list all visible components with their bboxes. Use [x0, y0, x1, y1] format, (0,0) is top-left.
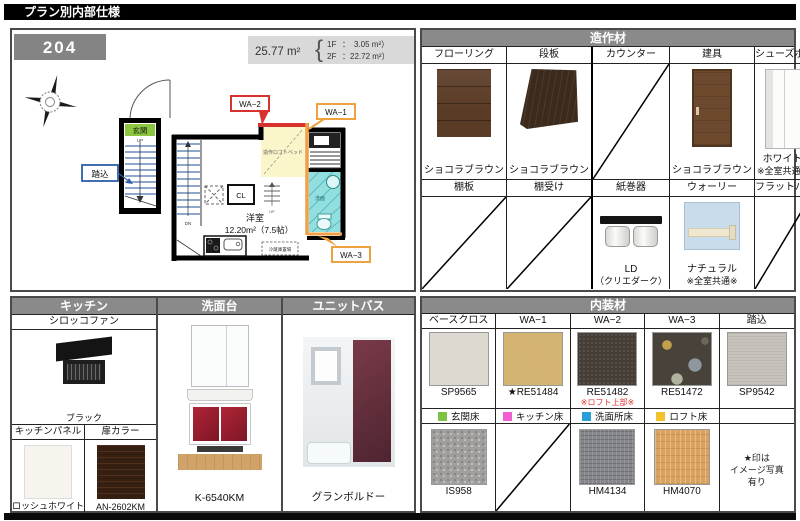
col-flatbar-label: フラットバー: [755, 180, 800, 197]
door-swatch: [692, 69, 732, 147]
rail-note: ※全室共通※: [686, 276, 737, 286]
kitchen-floor-color: [503, 412, 512, 421]
senmen-floor-color: [582, 412, 591, 421]
kitchen-door-swatch: [97, 445, 145, 499]
kitchen-panel-value: ロッシュホワイト: [12, 499, 84, 512]
shoebox-note: ※全室共通※: [757, 166, 800, 176]
area-2f-label: 2F: [327, 52, 336, 61]
wa2-swatch: [577, 332, 637, 386]
wa2-pointer: [259, 111, 269, 125]
kitchen-panel-label: キッチンパネル: [12, 425, 85, 440]
fumikomi-swatch: [727, 332, 787, 386]
col-wa1-label: WA−1: [496, 314, 570, 329]
paperholder-note: （クリエダーク）: [595, 276, 667, 286]
page-title: プラン別内部仕様: [4, 4, 796, 20]
col-counter-label: カウンター: [593, 47, 670, 64]
door-cell: ショコラブラウン: [670, 64, 755, 180]
col-bracket-label: 棚受け: [507, 180, 593, 197]
wa3-cell: RE51472: [645, 329, 719, 409]
flooring-value: ショコラブラウン: [424, 165, 504, 177]
loft-floor-swatch: [654, 429, 710, 485]
na-diagonal: [593, 64, 669, 179]
vanity-value: K-6540KM: [195, 492, 245, 504]
paperholder-value: LD: [625, 264, 638, 275]
wa2-note: ※ロフト上部※: [581, 399, 634, 407]
vanity-floor: [178, 454, 262, 470]
genkan-floor-swatch: [431, 429, 487, 485]
col-shelf-label: 棚板: [422, 180, 507, 197]
wa3-code: RE51472: [661, 388, 703, 399]
col-wa3-label: WA−3: [645, 314, 719, 329]
legend-senmen: 洗面所床: [571, 409, 645, 424]
footnote-line1: ★印は: [730, 452, 784, 464]
wa1-cell: ★RE51484: [496, 329, 570, 409]
counter-cell: [593, 64, 670, 180]
wa1-label: WA−1: [325, 108, 347, 117]
col-fumikomi-label: 踏込: [720, 314, 794, 329]
footnote: ★印は イメージ写真 有り: [730, 452, 784, 488]
legend-empty: [720, 409, 794, 424]
room-name: 洋室: [246, 212, 264, 223]
rail-value: ナチュラル: [687, 264, 737, 275]
bath-value: グランボルドー: [312, 489, 386, 504]
wa3-label: WA−3: [340, 251, 362, 260]
flatbar-cell: [755, 197, 800, 289]
paperholder-value-wrap: LD（クリエダーク）: [595, 264, 667, 286]
kitchen-floor-cell: [496, 424, 570, 511]
room-area: 12.20m²（7.5帖）: [225, 225, 294, 235]
loft-up-label: UP: [269, 209, 275, 214]
rail-value-wrap: ナチュラル※全室共通※: [686, 264, 737, 286]
equipment-panel: キッチン シロッコファン ブラック キッチンパネル 扉カラー ロッシュホワイト: [10, 296, 416, 513]
kitchen-floor-label: キッチン床: [516, 409, 564, 423]
fridge-space-label: 冷蔵庫置場: [269, 246, 292, 253]
genkan-floor-code: IS958: [446, 487, 472, 498]
na-diagonal: [422, 197, 506, 289]
kitchen-door-label: 扉カラー: [85, 425, 156, 440]
area-1f-label: 1F: [327, 40, 336, 49]
vanity-unit-image: [178, 325, 262, 473]
unit-bath-image: [303, 337, 395, 467]
area-brace: {: [315, 36, 323, 63]
room-number: 204: [43, 38, 77, 57]
wa2-label: WA−2: [239, 100, 261, 109]
shelf-cell: [422, 197, 507, 289]
millwork-title: 造作材: [422, 30, 794, 47]
stairs-dn-label: DN: [185, 221, 192, 226]
senmen-floor-label: 洗面所床: [595, 409, 633, 423]
genkan-label: 玄関: [133, 125, 148, 135]
loft-bed-label: 造作ロフトベッド: [263, 149, 303, 156]
bath-tub: [307, 442, 351, 464]
kitchen-column: キッチン シロッコファン ブラック キッチンパネル 扉カラー ロッシュホワイト: [12, 298, 158, 512]
loft-floor-code: HM4070: [663, 487, 701, 498]
flooring-cell: ショコラブラウン: [422, 64, 507, 180]
vanity-title: 洗面台: [158, 298, 281, 315]
page-title-text: プラン別内部仕様: [24, 5, 120, 19]
hood-body: [63, 360, 105, 384]
paper-holder-shelf: [600, 216, 662, 224]
wa1-code: ★RE51484: [508, 388, 559, 399]
vanity-column: 洗面台 K-6540KM: [158, 298, 283, 512]
fan-cell: ブラック: [12, 330, 156, 425]
footnote-cell: ★印は イメージ写真 有り: [720, 424, 794, 511]
senmen-floor-code: HM4134: [589, 487, 627, 498]
kitchen-panel-cell: ロッシュホワイト: [12, 440, 85, 512]
loft-floor-color: [656, 412, 665, 421]
senmen-label: 洗面: [315, 195, 325, 202]
wa3-swatch: [652, 332, 712, 386]
loft-floor-label: ロフト床: [669, 409, 707, 423]
vanity-cell: K-6540KM: [158, 315, 281, 512]
entry-door-arc: [130, 80, 170, 118]
spec-sheet-page: プラン別内部仕様 204 25.77 m² { 1F ： 3.05 m²） 2F…: [0, 0, 800, 521]
col-paperholder-label: 紙巻器: [593, 180, 670, 197]
interior-panel: 内装材 ベースクロス WA−1 WA−2 WA−3 踏込 SP9565 ★RE5…: [420, 296, 796, 513]
compass-icon: [18, 68, 83, 134]
kitchen-door-value: AN-2602KM: [96, 502, 145, 512]
paperholder-cell: LD（クリエダーク）: [593, 197, 670, 289]
door-value: ショコラブラウン: [672, 165, 752, 177]
footnote-line3: 有り: [730, 476, 784, 488]
col-tread-label: 段板: [507, 47, 593, 64]
equipment-grid: キッチン シロッコファン ブラック キッチンパネル 扉カラー ロッシュホワイト: [12, 298, 414, 511]
col-shoebox-label: シューズボックス: [755, 47, 800, 64]
loft-floor-cell: HM4070: [645, 424, 719, 511]
rail-swatch: [684, 202, 740, 250]
legend-genkan: 玄関床: [422, 409, 496, 424]
closet-label: CL: [236, 191, 246, 200]
floor-plan-drawing: 204 25.77 m² { 1F ： 3.05 m²） 2F ： 22.72 …: [12, 30, 414, 290]
na-diagonal: [755, 197, 800, 289]
fumikomi-label: 踏込: [91, 169, 109, 179]
senmen-floor-swatch: [579, 429, 635, 485]
bath-accent-panel: [353, 340, 391, 462]
area-1f-sep: ：: [342, 40, 350, 49]
fan-value: ブラック: [66, 411, 102, 424]
sink-icon: [224, 239, 242, 250]
paper-holder-rolls: [600, 226, 662, 247]
legend-kitchen: キッチン床: [496, 409, 570, 424]
fumikomi-code: SP9542: [739, 388, 775, 399]
bath-cell: グランボルドー: [283, 315, 414, 512]
toilet-bowl-icon: [317, 219, 331, 230]
tread-value: ショコラブラウン: [509, 165, 589, 177]
floor-plan-panel: 204 25.77 m² { 1F ： 3.05 m²） 2F ： 22.72 …: [10, 28, 416, 292]
col-basecloth-label: ベースクロス: [422, 314, 496, 329]
vanity-kickplate: [197, 446, 243, 452]
kitchen-panel-swatch: [24, 445, 72, 499]
tread-swatch: [520, 69, 578, 129]
interior-table: ベースクロス WA−1 WA−2 WA−3 踏込 SP9565 ★RE51484…: [422, 314, 794, 511]
bath-column: ユニットバス グランボルドー: [283, 298, 414, 512]
vanity-mirror: [191, 325, 249, 387]
genkan-floor-color: [438, 412, 447, 421]
kitchen-title: キッチン: [12, 298, 156, 315]
wa1-swatch: [503, 332, 563, 386]
shoebox-value-wrap: ホワイト※全室共通※: [757, 154, 800, 176]
millwork-table: フローリング 段板 カウンター 建具 シューズボックス ショコラブラウン ショコ…: [422, 47, 794, 289]
washbasin-icon: [327, 176, 340, 189]
bottom-rule: [4, 513, 796, 520]
vanity-counter: [187, 389, 253, 401]
range-hood-icon: [55, 336, 113, 390]
shoebox-value: ホワイト: [763, 154, 800, 165]
fan-label: シロッコファン: [12, 315, 156, 330]
area-1f-value: 3.05 m²）: [354, 40, 389, 49]
area-total: 25.77 m²: [255, 46, 301, 58]
basecloth-cell: SP9565: [422, 329, 496, 409]
shoebox-swatch: [765, 69, 800, 149]
millwork-panel: 造作材 フローリング 段板 カウンター 建具 シューズボックス ショコラブラウン…: [420, 28, 796, 292]
senmen-floor-cell: HM4134: [571, 424, 645, 511]
shoebox-cell: ホワイト※全室共通※: [755, 64, 800, 180]
kitchen-sub-grid: キッチンパネル 扉カラー ロッシュホワイト AN-2602KM: [12, 425, 156, 512]
legend-loft: ロフト床: [645, 409, 719, 424]
rail-cell: ナチュラル※全室共通※: [670, 197, 755, 289]
area-2f-sep: ：: [342, 52, 350, 61]
genkan-floor-label: 玄関床: [451, 409, 480, 423]
basecloth-swatch: [429, 332, 489, 386]
wa2-code: RE51482: [587, 388, 629, 399]
col-door-label: 建具: [670, 47, 755, 64]
area-2f-value: 22.72 m²）: [350, 52, 390, 61]
bracket-cell: [507, 197, 593, 289]
bath-title: ユニットバス: [283, 298, 414, 315]
footnote-line2: イメージ写真: [730, 464, 784, 476]
paper-holder-icon: [600, 216, 662, 256]
na-diagonal: [507, 197, 591, 289]
flooring-swatch: [437, 69, 491, 137]
col-wa2-label: WA−2: [571, 314, 645, 329]
stove-icon: [206, 238, 220, 253]
col-flooring-label: フローリング: [422, 47, 507, 64]
fumikomi-cell: SP9542: [720, 329, 794, 409]
wa2-cell: RE51482 ※ロフト上部※: [571, 329, 645, 409]
vanity-cabinet: [189, 403, 251, 445]
loft-bed-head-inner: [314, 136, 329, 145]
na-diagonal: [496, 424, 569, 511]
interior-title: 内装材: [422, 298, 794, 314]
col-rail-label: ウォーリー: [670, 180, 755, 197]
tread-cell: ショコラブラウン: [507, 64, 593, 180]
basecloth-code: SP9565: [441, 388, 477, 399]
hood-top: [56, 337, 112, 362]
genkan-floor-cell: IS958: [422, 424, 496, 511]
bath-window: [311, 347, 341, 385]
kitchen-door-cell: AN-2602KM: [85, 440, 156, 512]
